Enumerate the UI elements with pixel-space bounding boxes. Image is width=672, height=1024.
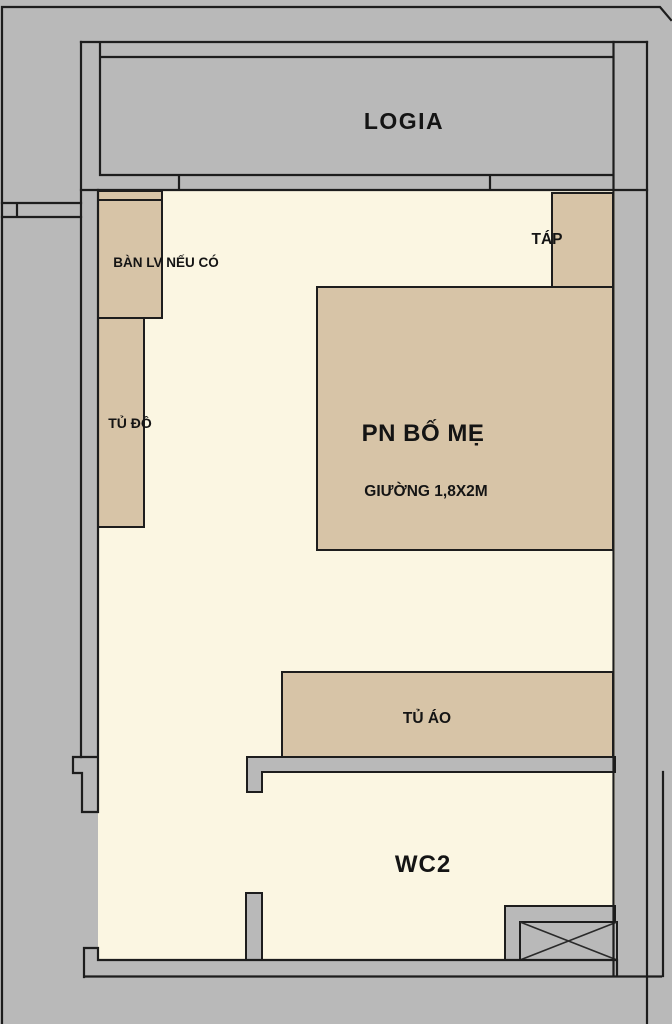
floor-plan-drawing: LOGIA BÀN LV NẾU CÓ TÁP TỦ ĐỒ PN BỐ MẸ G…: [0, 0, 672, 1024]
bedroom-label: PN BỐ MẸ: [362, 419, 485, 447]
nightstand-label: TÁP: [532, 231, 563, 248]
closet-label: TỦ ĐỒ: [108, 414, 152, 431]
logia-label: LOGIA: [364, 108, 444, 134]
floor-plan-page: LOGIA BÀN LV NẾU CÓ TÁP TỦ ĐỒ PN BỐ MẸ G…: [0, 0, 672, 1024]
shaft-box: [520, 922, 617, 960]
bed-label: GIƯỜNG 1,8X2M: [364, 482, 487, 500]
desk-label: BÀN LV NẾU CÓ: [113, 255, 219, 270]
wardrobe-label: TỦ ÁO: [403, 709, 451, 727]
wc-label: WC2: [395, 851, 451, 878]
desk-sill-strip: [98, 191, 162, 200]
wc-shower-wall-stub: [246, 893, 262, 960]
bed-block: [317, 287, 613, 550]
